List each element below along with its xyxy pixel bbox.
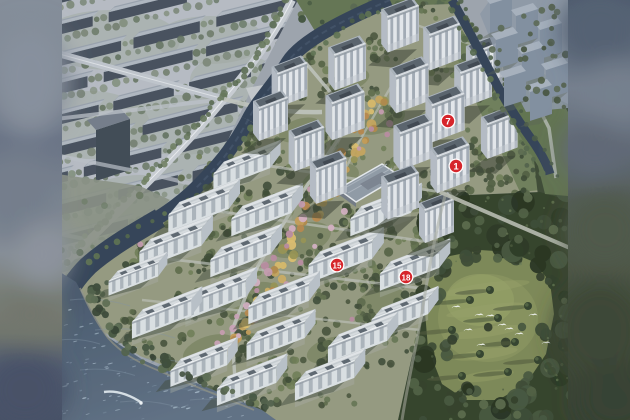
svg-text:18: 18	[402, 273, 411, 282]
svg-text:15: 15	[333, 261, 342, 270]
svg-text:1: 1	[453, 161, 459, 172]
svg-text:7: 7	[445, 116, 450, 127]
